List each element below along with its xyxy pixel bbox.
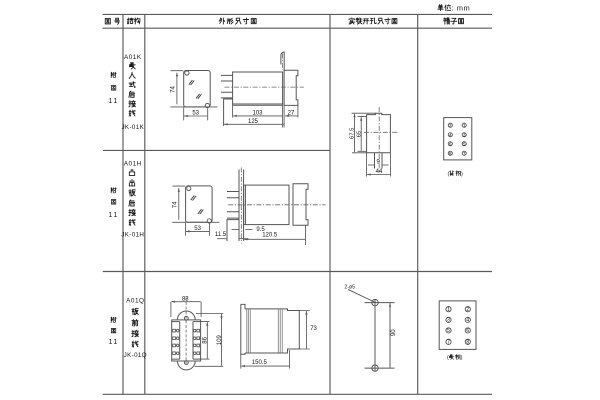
svg-text:90: 90 [391, 329, 397, 336]
svg-text:67.5: 67.5 [350, 128, 356, 139]
svg-text:: mm: : mm [452, 4, 471, 13]
svg-text:): ) [461, 171, 463, 177]
svg-text:A01H: A01H [124, 161, 142, 168]
svg-text:125: 125 [248, 119, 259, 125]
svg-text:27: 27 [288, 111, 295, 117]
svg-text:4: 4 [466, 318, 469, 324]
svg-text:(: ( [447, 355, 449, 361]
svg-text:2: 2 [466, 307, 469, 313]
svg-text:3: 3 [447, 318, 450, 324]
svg-text:5: 5 [447, 328, 450, 334]
svg-text:A01K: A01K [124, 54, 142, 61]
svg-text:11: 11 [108, 212, 118, 219]
svg-text:109: 109 [217, 335, 223, 346]
svg-text:JK-01K: JK-01K [121, 124, 144, 131]
svg-text:83: 83 [182, 297, 189, 303]
svg-text:6: 6 [466, 328, 469, 334]
svg-text:150.5: 150.5 [252, 360, 268, 366]
svg-text:73: 73 [310, 326, 317, 332]
svg-text:11: 11 [108, 339, 118, 346]
svg-text:JK-01Q: JK-01Q [124, 352, 147, 359]
svg-text:JK-01H: JK-01H [121, 232, 144, 239]
svg-text:11.5: 11.5 [215, 232, 227, 238]
svg-text:1: 1 [447, 307, 450, 313]
svg-text:11: 11 [108, 98, 118, 105]
svg-text:(: ( [448, 171, 450, 177]
svg-text:65: 65 [356, 131, 362, 137]
svg-text:44: 44 [376, 169, 383, 175]
svg-text:): ) [461, 355, 463, 361]
svg-text:7: 7 [447, 339, 450, 345]
svg-text:103: 103 [252, 111, 263, 117]
svg-text:8: 8 [466, 339, 469, 345]
svg-text:2-ø5: 2-ø5 [344, 284, 355, 290]
svg-text:120.5: 120.5 [262, 232, 278, 238]
svg-text:A01Q: A01Q [126, 298, 144, 305]
svg-text:86: 86 [203, 336, 209, 343]
